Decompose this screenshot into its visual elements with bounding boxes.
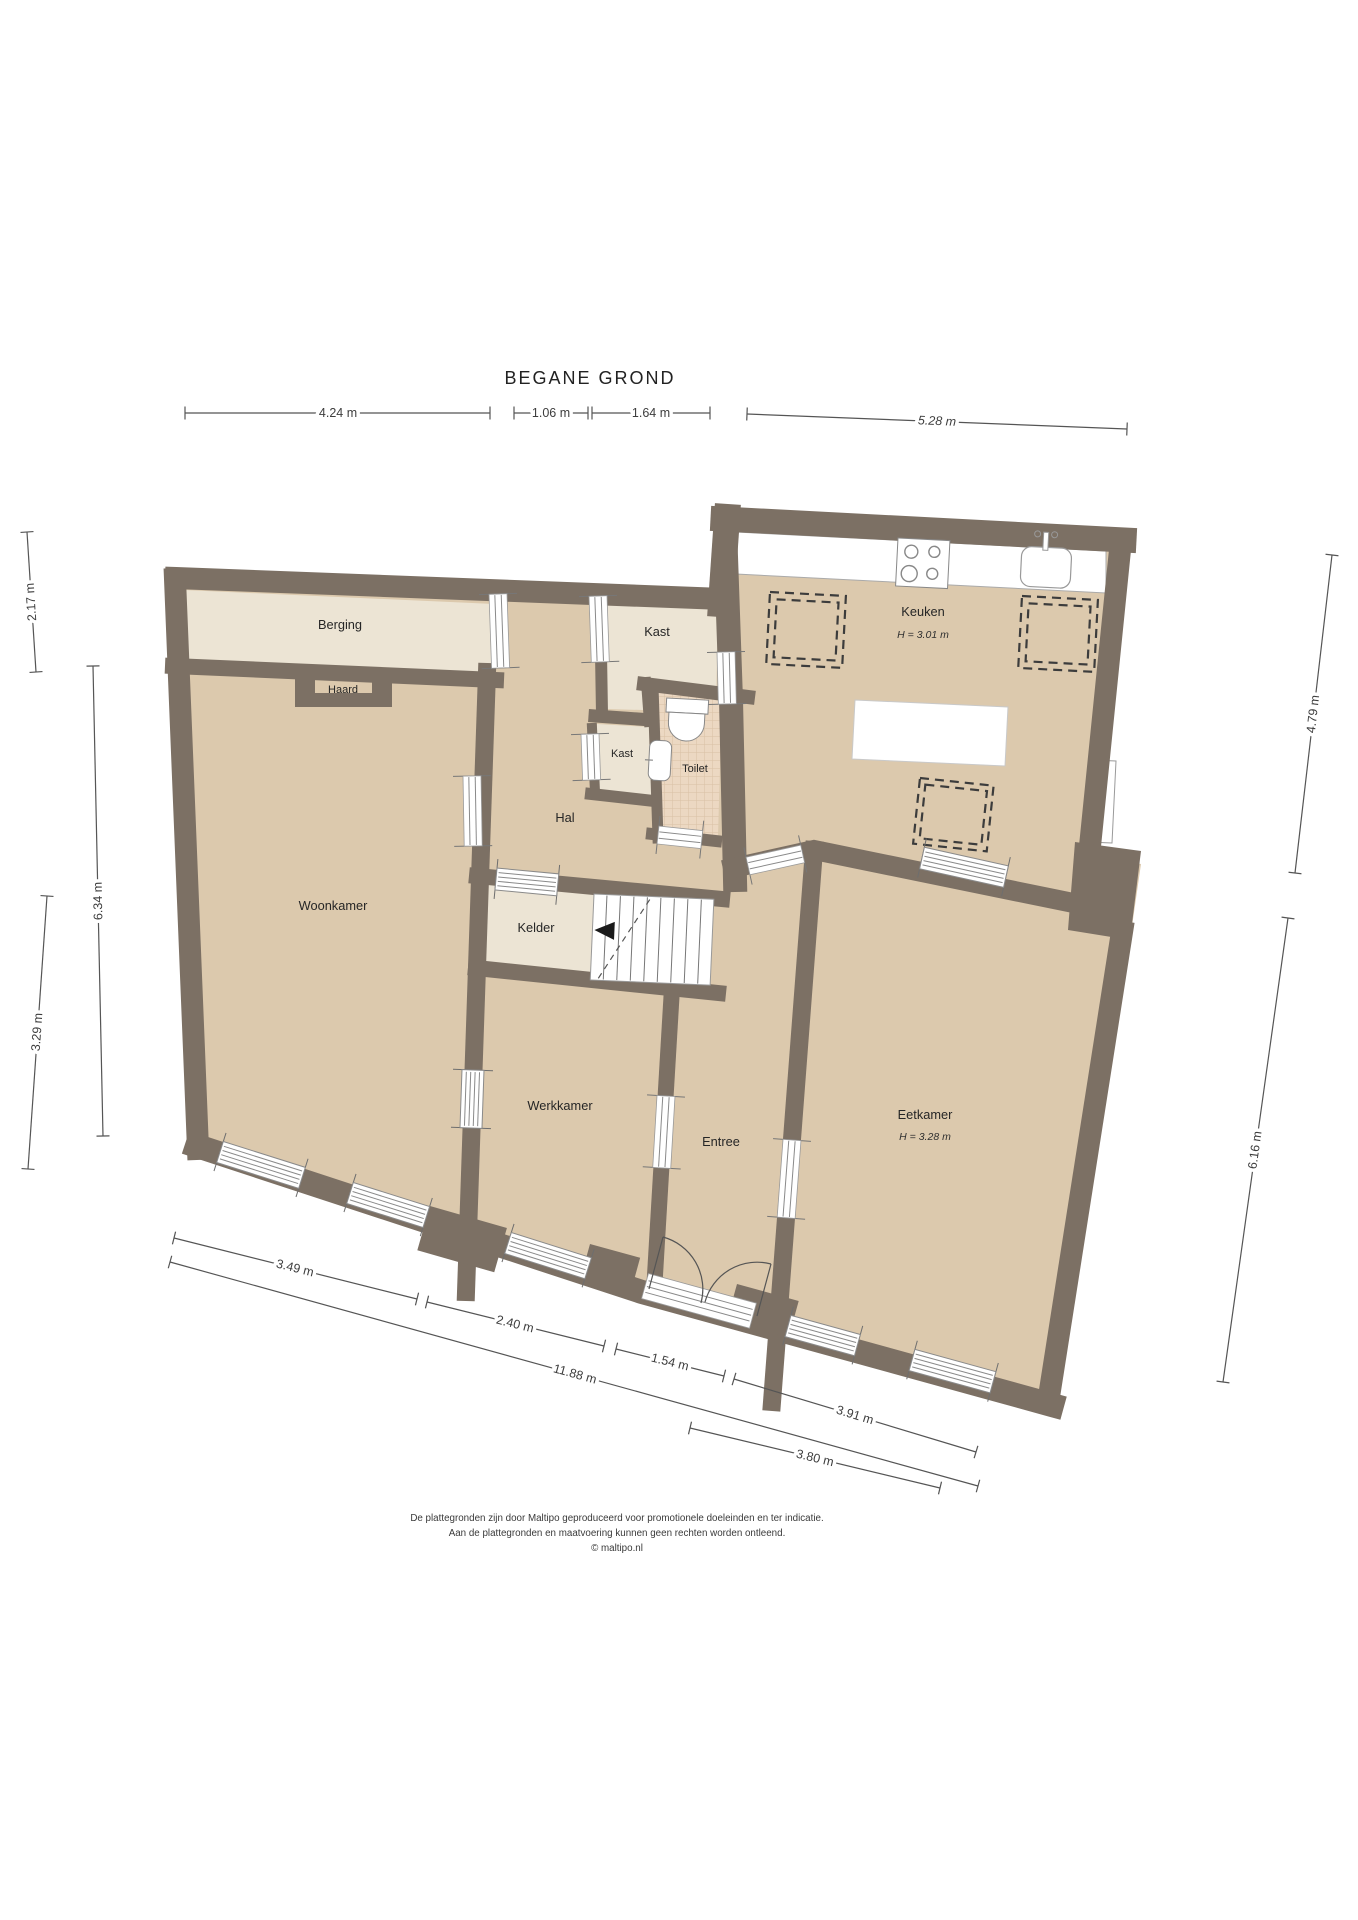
dimension-label: 5.28 m	[918, 413, 957, 429]
dimension: 5.28 m	[747, 408, 1128, 436]
wall-notch-right	[1068, 842, 1141, 940]
room-height-eetkamer: H = 3.28 m	[899, 1131, 951, 1143]
room-label-kast-onder: Kast	[611, 748, 633, 760]
room-label-toilet: Toilet	[682, 763, 708, 775]
dimension-label: 2.17 m	[23, 582, 39, 621]
dimension-label: 3.80 m	[795, 1447, 835, 1470]
wall-kast-boven-bottom	[595, 716, 652, 720]
dimension-label: 1.64 m	[632, 406, 670, 420]
dimension-label: 4.79 m	[1304, 694, 1322, 734]
room-label-keuken: Keuken	[901, 604, 944, 619]
stove-icon	[896, 538, 950, 589]
footer-line-3: © maltipo.nl	[591, 1543, 643, 1554]
dimension: 3.80 m	[688, 1422, 941, 1495]
page: { "title": "BEGANE GROND", "rooms": { "b…	[0, 0, 1358, 1920]
room-height-keuken: H = 3.01 m	[897, 629, 949, 641]
dimension: 4.79 m	[1289, 554, 1339, 874]
room-label-kelder: Kelder	[518, 920, 556, 935]
dimension-label: 3.49 m	[275, 1257, 315, 1280]
dimension: 1.64 m	[592, 406, 710, 420]
room-label-werkkamer: Werkkamer	[527, 1098, 593, 1113]
stairs-icon	[590, 894, 714, 985]
dimension: 1.54 m	[614, 1343, 725, 1383]
dimension: 6.16 m	[1217, 917, 1295, 1383]
footer-line-2: Aan de plattegronden en maatvoering kunn…	[449, 1528, 786, 1539]
dimension: 3.29 m	[22, 896, 54, 1170]
dimension: 2.17 m	[21, 532, 43, 673]
kitchen-island	[852, 700, 1008, 766]
room-label-haard: Haard	[328, 684, 358, 696]
footer: De plattegronden zijn door Maltipo gepro…	[410, 1513, 823, 1554]
dimension: 1.06 m	[514, 406, 588, 420]
dimension-label: 2.40 m	[495, 1313, 535, 1336]
room-label-kast-boven: Kast	[644, 624, 670, 639]
dimension-label: 1.54 m	[650, 1351, 690, 1374]
dimension: 3.49 m	[172, 1232, 418, 1306]
room-label-berging: Berging	[318, 617, 362, 632]
dimension-label: 6.34 m	[91, 882, 106, 921]
room-label-eetkamer: Eetkamer	[898, 1107, 954, 1122]
dimension-label: 1.06 m	[532, 406, 570, 420]
dimension-label: 3.91 m	[835, 1403, 876, 1427]
room-label-entree: Entree	[702, 1134, 740, 1149]
wall-kast-onder-bottom	[591, 794, 654, 801]
dimension-label: 6.16 m	[1245, 1130, 1264, 1170]
dimension-label: 4.24 m	[319, 406, 357, 420]
dimension: 6.34 m	[87, 666, 110, 1136]
room-label-hal: Hal	[555, 810, 574, 825]
dimension: 4.24 m	[185, 406, 490, 420]
dimension-label: 11.88 m	[552, 1361, 598, 1386]
footer-line-1: De plattegronden zijn door Maltipo gepro…	[410, 1513, 823, 1524]
dimension-label: 3.29 m	[29, 1012, 46, 1051]
room-label-woonkamer: Woonkamer	[299, 898, 368, 913]
floor-plan: BEGANE GROND	[0, 0, 1358, 1920]
dimension: 2.40 m	[425, 1296, 605, 1353]
page-title: BEGANE GROND	[504, 368, 675, 388]
